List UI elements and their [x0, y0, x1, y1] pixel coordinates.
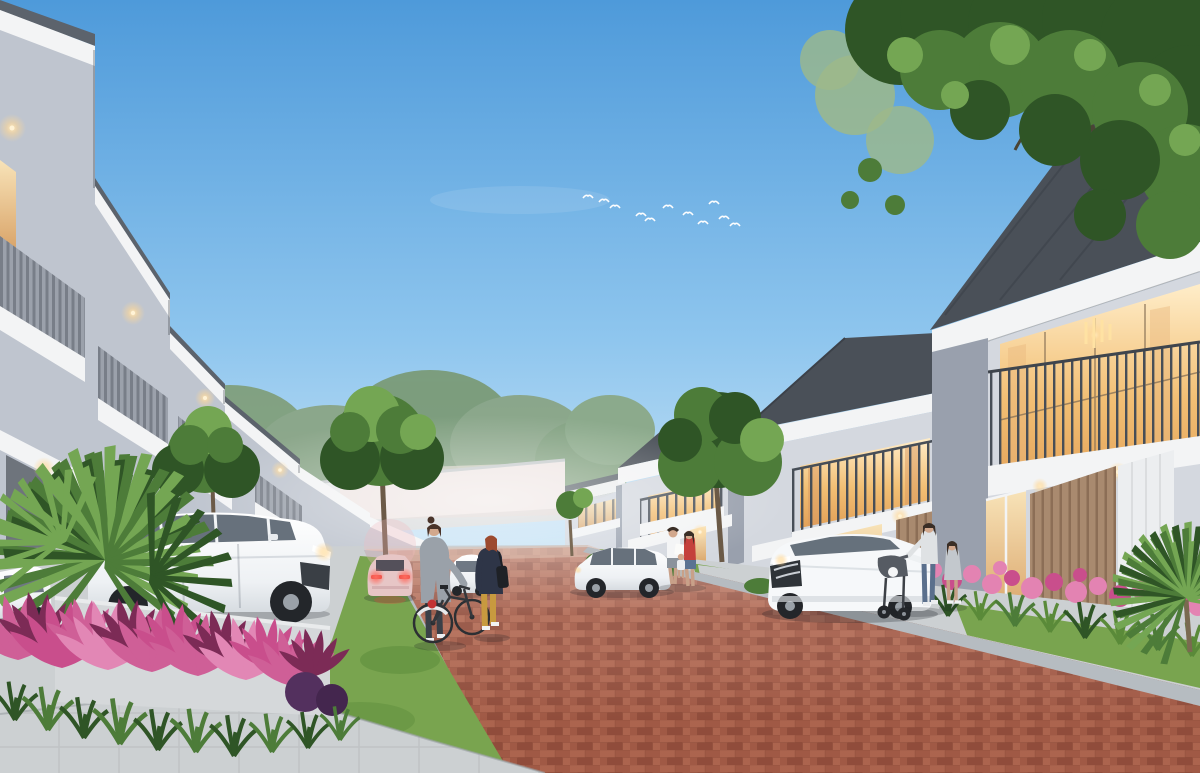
street-scene-render	[0, 0, 1200, 773]
render-stage	[0, 0, 1200, 773]
cloud-wisp	[430, 186, 610, 214]
bike-red-bag	[428, 600, 437, 609]
left-warm-window	[0, 160, 16, 250]
pink-car-departing	[364, 519, 416, 604]
